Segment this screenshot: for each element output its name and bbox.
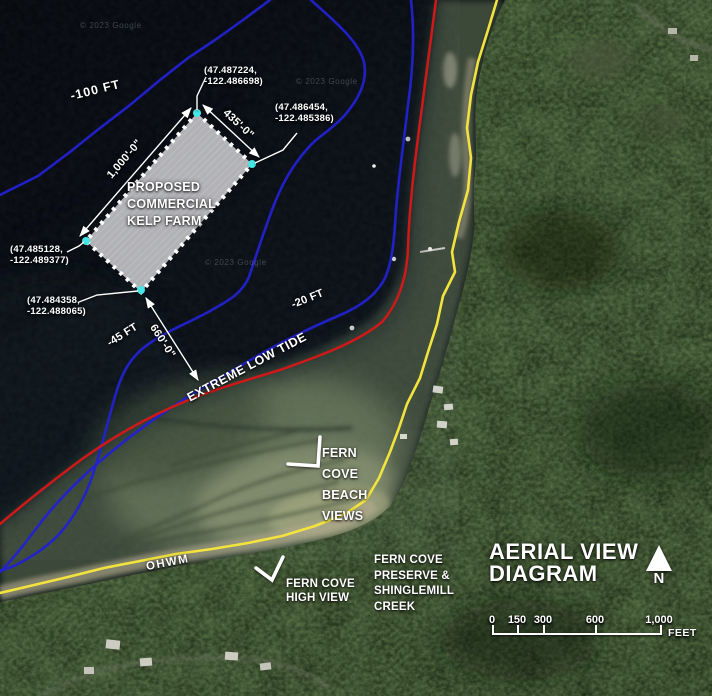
watermark: © 2023 Google [296,77,358,86]
preserve-label: FERN COVE PRESERVE & SHINGLEMILL CREEK [374,553,454,615]
kelp-farm-corner-marker [82,237,90,245]
scalebar-tick [595,625,597,633]
scalebar-unit: FEET [668,627,697,639]
map-canvas [0,0,712,696]
scalebar-line [492,633,662,635]
watermark: © 2023 Google [80,21,142,30]
scalebar: 0 150 300 600 1,000 FEET [491,614,706,648]
kelp-farm-corner-marker [193,109,201,117]
beach-views-label: FERN COVE BEACH VIEWS [322,443,367,527]
scalebar-tick [492,625,494,633]
corner-coordinate-west: (47.485128, -122.489377) [10,244,69,266]
kelp-farm-corner-marker [137,286,145,294]
kelp-farm-corner-marker [248,160,256,168]
corner-coordinate-east: (47.486454, -122.485386) [275,102,334,124]
scalebar-tick [660,625,662,633]
corner-coordinate-north: (47.487224, -122.486698) [204,65,263,87]
corner-coordinate-south: (47.484358, -122.488065) [27,295,86,317]
kelp-farm-label: PROPOSED COMMERCIAL KELP FARM [127,179,216,230]
watermark: © 2023 Google [205,258,267,267]
aerial-view-diagram: © 2023 Google © 2023 Google © 2023 Googl… [0,0,712,696]
scalebar-tick-label: 1,000 [639,614,679,626]
scalebar-tick [543,625,545,633]
scalebar-tick [517,625,519,633]
north-label: N [647,570,671,588]
diagram-title: AERIAL VIEW DIAGRAM [489,541,638,584]
high-view-label: FERN COVE HIGH VIEW [286,577,355,605]
